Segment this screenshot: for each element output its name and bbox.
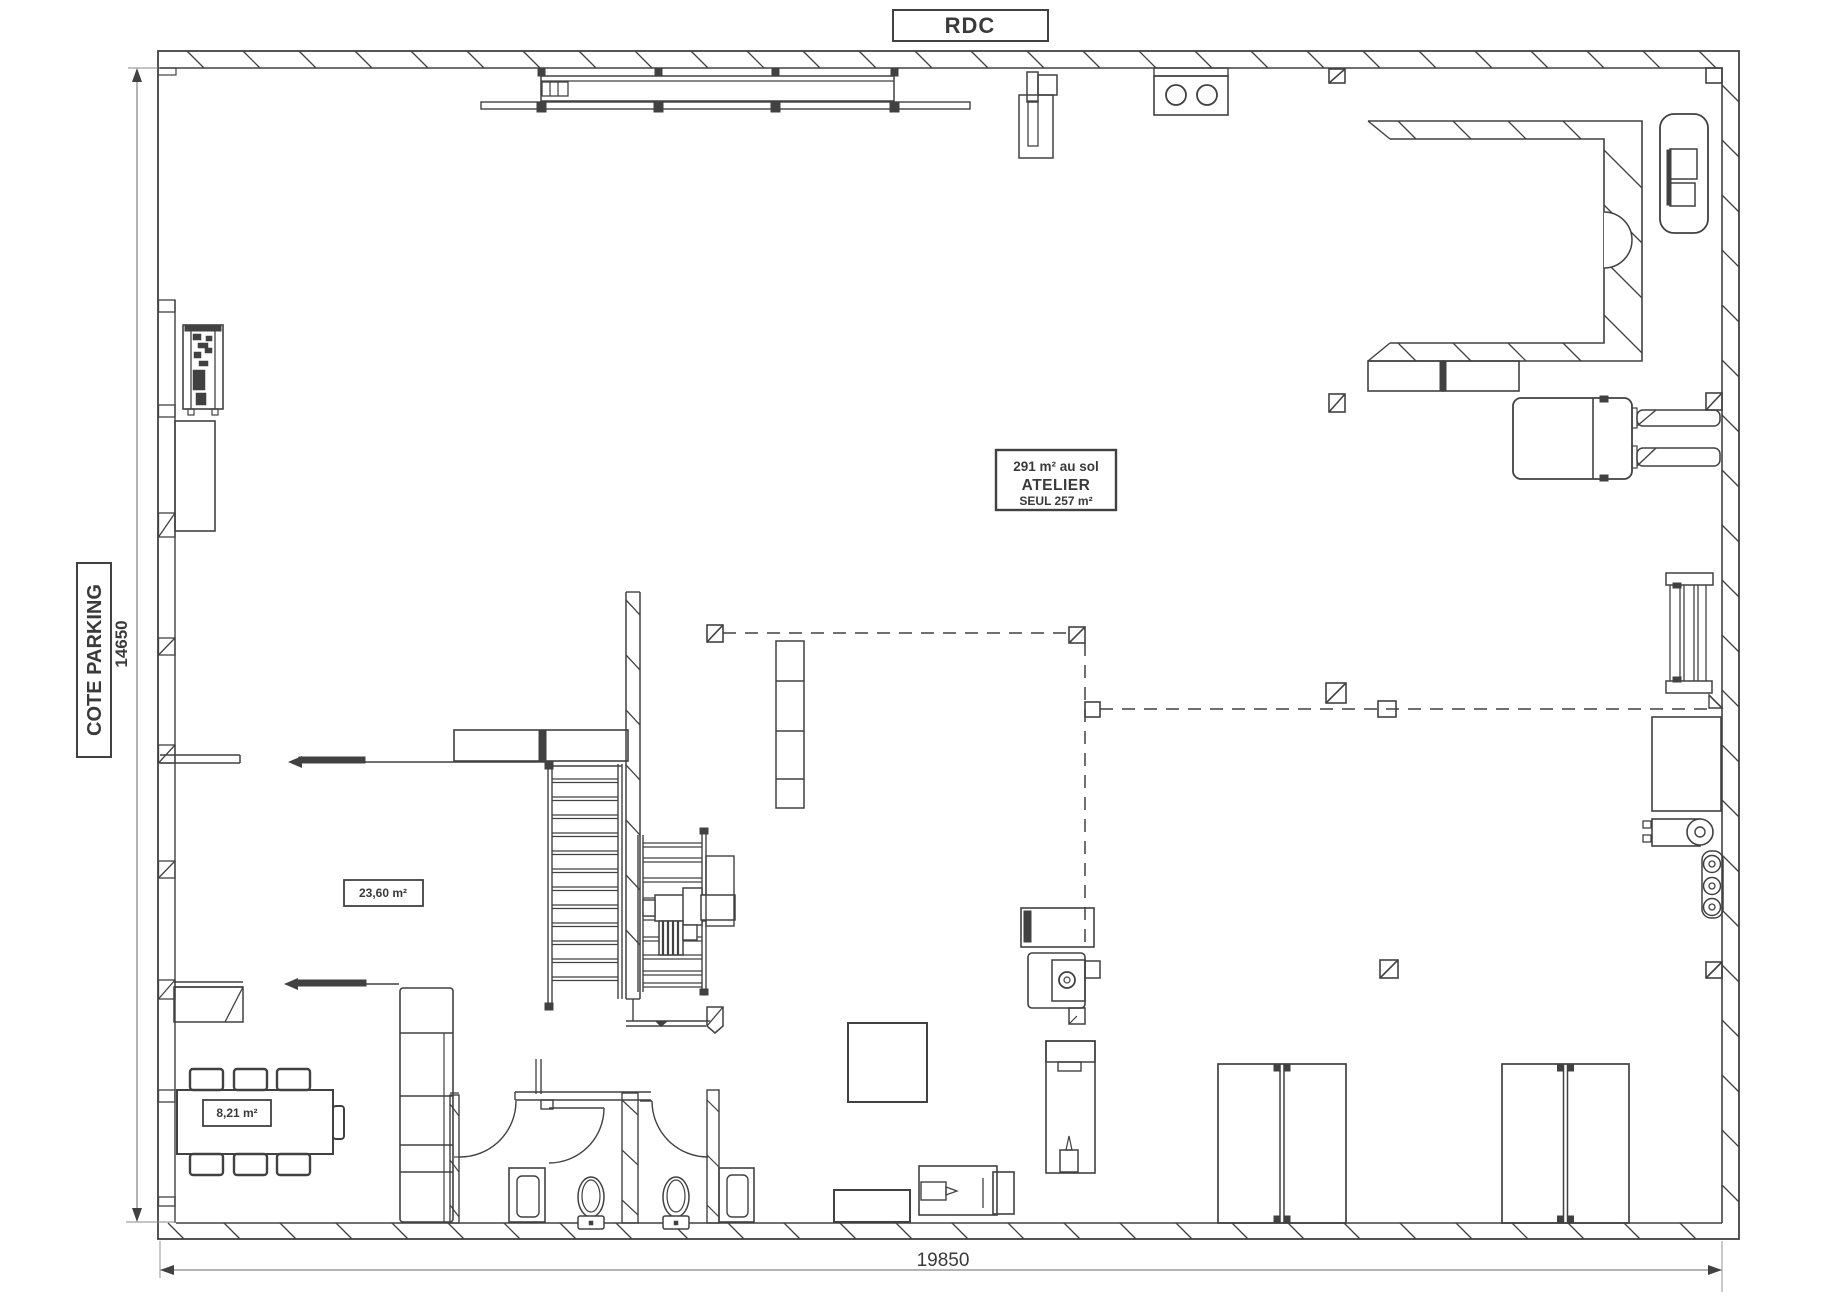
svg-text:23,60 m²: 23,60 m² xyxy=(359,886,407,900)
svg-text:19850: 19850 xyxy=(917,1250,970,1271)
svg-text:8,21 m²: 8,21 m² xyxy=(216,1106,257,1120)
svg-text:ATELIER: ATELIER xyxy=(1022,477,1091,494)
svg-text:COTE PARKING: COTE PARKING xyxy=(84,584,106,736)
svg-text:291 m² au sol: 291 m² au sol xyxy=(1013,459,1099,474)
svg-text:RDC: RDC xyxy=(945,13,996,38)
svg-text:SEUL 257 m²: SEUL 257 m² xyxy=(1019,494,1092,508)
svg-text:14650: 14650 xyxy=(112,620,131,667)
